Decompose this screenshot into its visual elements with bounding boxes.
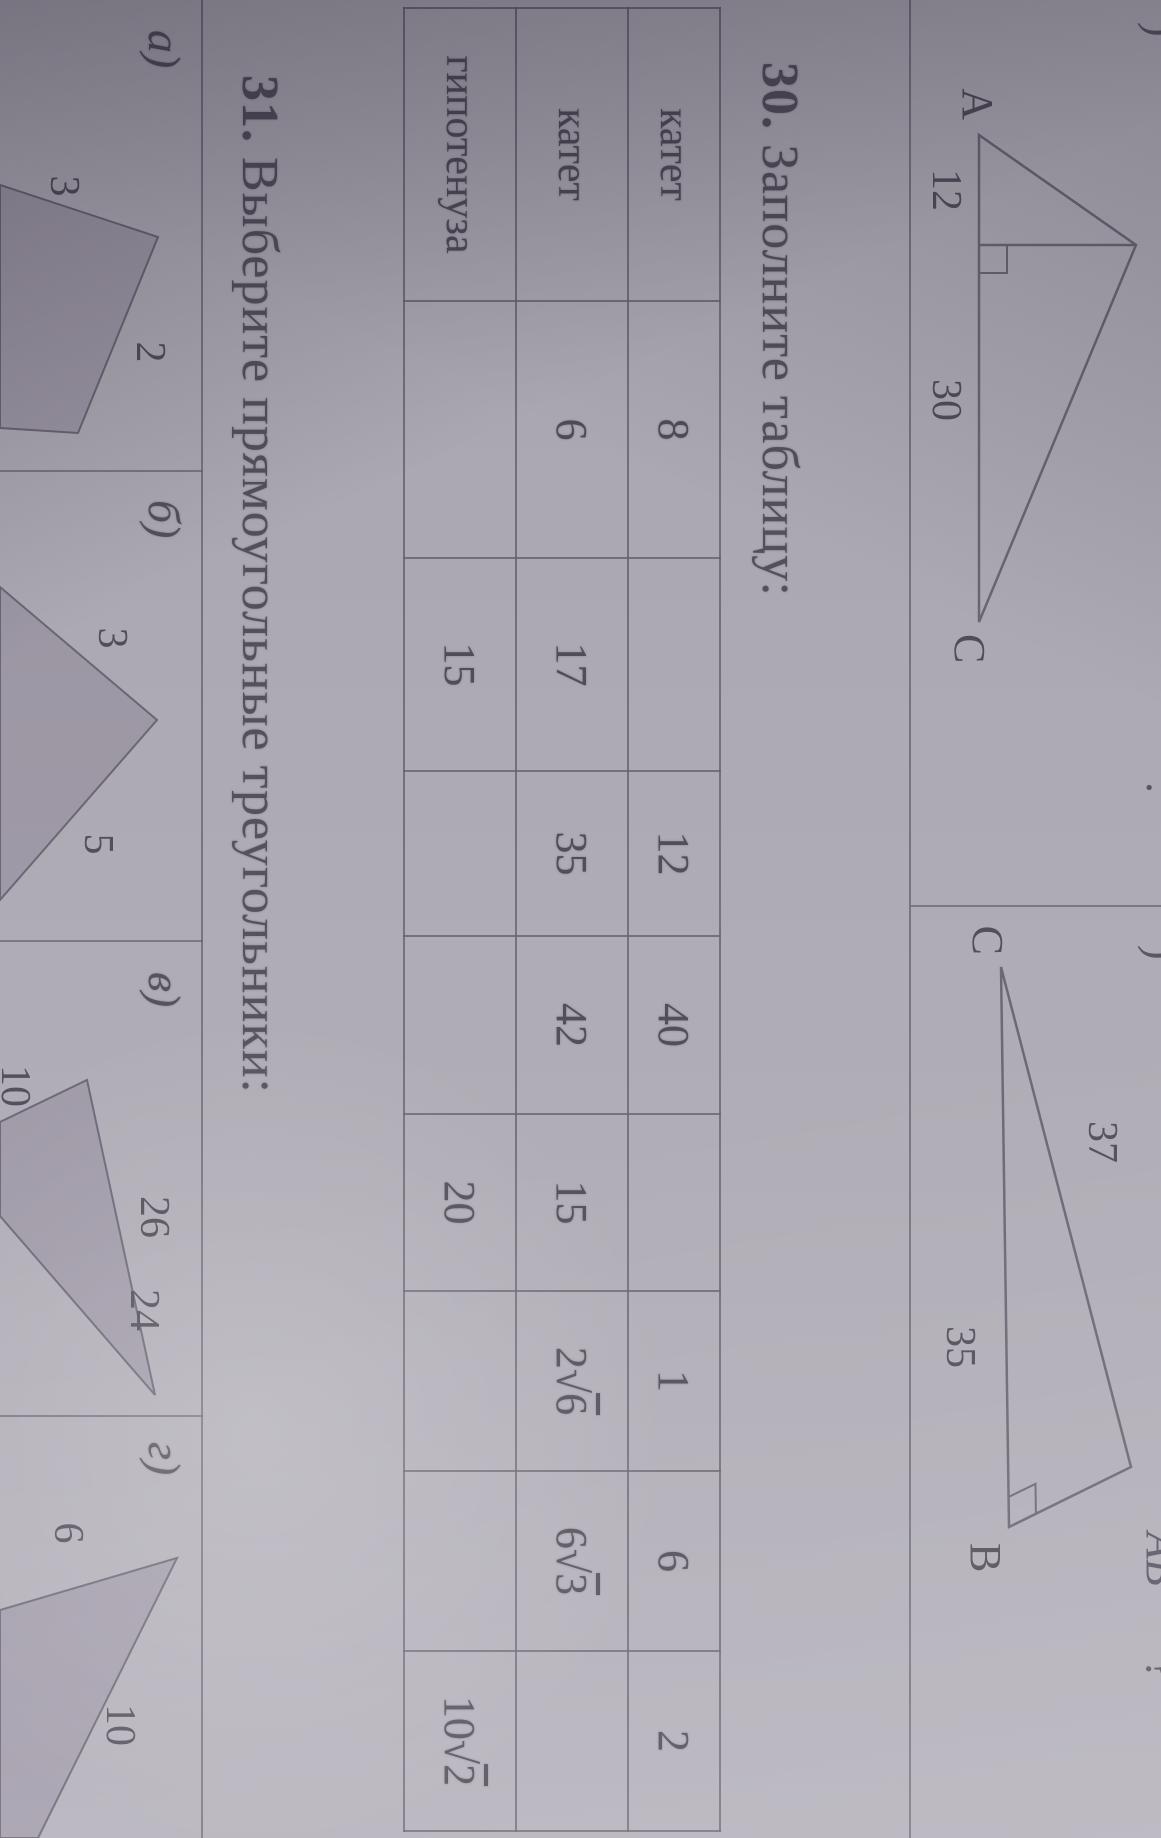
table-cell xyxy=(516,1651,628,1831)
textbook-page: ) . ) АВ ? A 12 30 C C 37 35 B 30. xyxy=(0,0,1161,1838)
side-label: 10 xyxy=(0,1065,38,1107)
table-cell: 6√3 xyxy=(516,1471,628,1651)
table-cell: 35 xyxy=(516,771,628,936)
table-cell xyxy=(628,1114,720,1291)
side-label: 3 xyxy=(89,628,135,649)
fill-in-table: катет 8 12 40 1 6 2 катет 6 17 35 42 15 … xyxy=(403,7,721,1832)
problem-31-heading: 31. Выберите прямоугольные треугольники: xyxy=(230,75,289,1094)
problem-31-title: Выберите прямоугольные треугольники: xyxy=(231,157,288,1094)
table-cell: 2 xyxy=(628,1651,720,1831)
table-cell xyxy=(628,558,720,771)
right-angle-mark xyxy=(1009,1484,1036,1514)
strip-triangle-b: 3 5 xyxy=(0,470,203,940)
strip-triangle-g: 6 10 xyxy=(0,1415,203,1838)
side-label-35: 35 xyxy=(937,1326,983,1368)
row-header: катет xyxy=(516,8,628,301)
side-label: 10 xyxy=(97,1704,143,1746)
segment-label-12: 12 xyxy=(923,169,969,211)
figure-triangle-cab: C 37 35 B xyxy=(911,907,1161,1838)
side-label: 6 xyxy=(45,1523,91,1544)
table-cell: 42 xyxy=(516,936,628,1114)
row-header: гипотенуза xyxy=(404,8,516,301)
table-cell: 12 xyxy=(628,771,720,936)
side-label: 5 xyxy=(75,834,121,855)
table-row-hypotenuse: гипотенуза 15 20 10√2 xyxy=(404,8,516,1831)
table-cell: 1 xyxy=(628,1291,720,1471)
side-label: 3 xyxy=(41,176,87,197)
table-cell xyxy=(404,936,516,1114)
vertex-label-c: C xyxy=(945,634,994,663)
side-label-37: 37 xyxy=(1079,1121,1125,1163)
figure-triangle-abc: A 12 30 C xyxy=(911,0,1161,905)
strip-triangle-v: 26 24 10 xyxy=(0,940,203,1415)
side-label: 24 xyxy=(121,1289,167,1331)
problem-30-title: Заполните таблицу: xyxy=(751,144,808,597)
table-row-leg2: катет 6 17 35 42 15 2√6 6√3 xyxy=(516,8,628,1831)
vertex-label-a: A xyxy=(953,88,1002,120)
table-cell: 15 xyxy=(516,1114,628,1291)
table-cell: 40 xyxy=(628,936,720,1114)
vertex-label-c: C xyxy=(963,926,1012,955)
table-cell: 15 xyxy=(404,558,516,771)
table-cell: 6 xyxy=(516,301,628,558)
strip-triangle-a: 3 2 xyxy=(0,0,203,470)
table-cell: 17 xyxy=(516,558,628,771)
table-cell: 6 xyxy=(628,1471,720,1651)
table-cell: 20 xyxy=(404,1114,516,1291)
row-header: катет xyxy=(628,8,720,301)
segment-label-30: 30 xyxy=(923,379,969,421)
right-angle-mark xyxy=(979,245,1007,273)
table-cell xyxy=(404,301,516,558)
problem-30-number: 30. xyxy=(751,62,808,130)
side-label: 26 xyxy=(131,1196,177,1238)
problem-31-number: 31. xyxy=(231,75,288,143)
problem-30-heading: 30. Заполните таблицу: xyxy=(750,62,809,597)
vertex-label-b: B xyxy=(961,1543,1010,1572)
table-cell: 2√6 xyxy=(516,1291,628,1471)
table-row-leg1: катет 8 12 40 1 6 2 xyxy=(628,8,720,1831)
side-label: 2 xyxy=(127,342,173,363)
table-cell xyxy=(404,1291,516,1471)
photo-of-textbook-page: ) . ) АВ ? A 12 30 C C 37 35 B 30. xyxy=(0,0,1161,1838)
table-cell: 8 xyxy=(628,301,720,558)
table-cell: 10√2 xyxy=(404,1651,516,1831)
table-cell xyxy=(404,771,516,936)
table-cell xyxy=(404,1471,516,1651)
